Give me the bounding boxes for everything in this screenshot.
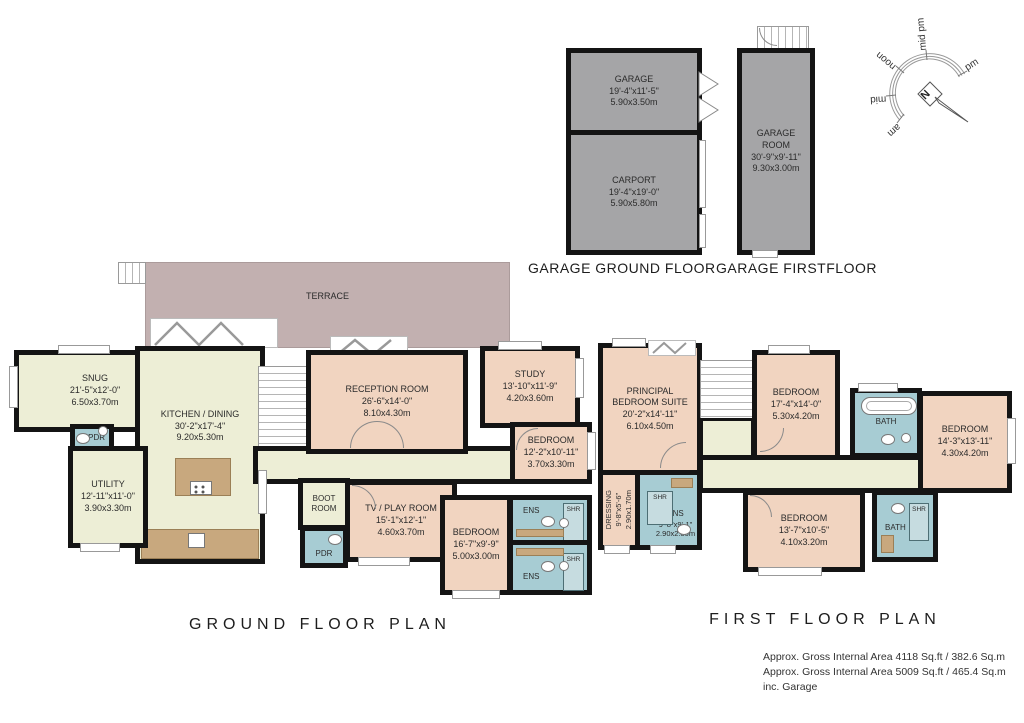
window bbox=[9, 366, 18, 408]
window bbox=[587, 432, 596, 470]
room-dims-imperial: 19'-4"x11'-5" bbox=[609, 86, 659, 98]
room-dims-metric: 4.20x3.60m bbox=[506, 393, 553, 405]
window bbox=[575, 358, 584, 398]
toilet-icon bbox=[328, 534, 342, 545]
area-summary: Approx. Gross Internal Area 4118 Sq.ft /… bbox=[763, 650, 1024, 696]
window bbox=[498, 341, 542, 350]
room-dims-metric: 5.90x5.80m bbox=[610, 198, 657, 210]
room-dims-metric: 5.30x4.20m bbox=[772, 411, 819, 423]
room-name: BEDROOM bbox=[453, 527, 500, 539]
window bbox=[752, 250, 778, 258]
room-garage: GARAGE 19'-4"x11'-5" 5.90x3.50m bbox=[566, 48, 702, 135]
room-dims-metric: 6.50x3.70m bbox=[71, 397, 118, 409]
window bbox=[58, 345, 110, 354]
basin-icon bbox=[901, 433, 911, 443]
room-dims-metric: 5.90x3.50m bbox=[610, 97, 657, 109]
room-dims-imperial: 30'-9"x9'-11" bbox=[751, 152, 801, 164]
svg-text:am: am bbox=[885, 121, 903, 138]
room-label: BEDROOM 16'-7"x9'-9" 5.00x3.00m bbox=[445, 500, 507, 590]
room-name: PDR bbox=[316, 549, 333, 559]
window bbox=[604, 545, 630, 554]
vanity bbox=[881, 535, 894, 553]
window bbox=[1007, 418, 1016, 464]
room-name: BOOT ROOM bbox=[307, 494, 341, 515]
room-dims-imperial: 13'-10"x11'-9" bbox=[503, 381, 558, 393]
room-name: DRESSING bbox=[604, 490, 614, 529]
basin-icon bbox=[559, 561, 569, 571]
room-label: BEDROOM 14'-3"x13'-11" 4.30x4.20m bbox=[923, 396, 1007, 488]
svg-text:noon: noon bbox=[874, 49, 898, 72]
room-utility: UTILITY 12'-11"x11'-0" 3.90x3.30m bbox=[68, 446, 148, 548]
room-bath-f1: BATH bbox=[850, 388, 922, 458]
room-name: BEDROOM bbox=[773, 387, 820, 399]
room-boot-room: BOOT ROOM bbox=[298, 478, 350, 530]
room-dims-metric: 6.10x4.50m bbox=[626, 421, 673, 433]
room-bedroom-f2: BEDROOM 14'-3"x13'-11" 4.30x4.20m bbox=[918, 391, 1012, 493]
room-dims-imperial: 16'-7"x9'-9" bbox=[453, 539, 498, 551]
toilet-icon bbox=[76, 433, 90, 444]
room-dims-imperial: 9'-8"x5'-6" bbox=[614, 493, 624, 527]
room-label: DRESSING 9'-8"x5'-6" 2.90x1.70m bbox=[603, 475, 635, 545]
room-dims-metric: 5.00x3.00m bbox=[452, 551, 499, 563]
room-label: GARAGE ROOM 30'-9"x9'-11" 9.30x3.00m bbox=[742, 53, 810, 250]
room-label: STUDY 13'-10"x11'-9" 4.20x3.60m bbox=[485, 351, 575, 423]
ground-stairs bbox=[258, 366, 310, 448]
toilet-icon bbox=[881, 434, 895, 445]
room-dims-imperial: 15'-1"x12'-1" bbox=[376, 515, 426, 527]
toilet-icon bbox=[541, 516, 555, 527]
room-dims-metric: 3.90x3.30m bbox=[84, 503, 131, 515]
room-dims-imperial: 17'-4"x14'-0" bbox=[771, 399, 821, 411]
room-ens-g1: ENS SHR bbox=[508, 495, 592, 545]
room-dressing: DRESSING 9'-8"x5'-6" 2.90x1.70m bbox=[598, 470, 640, 550]
area-line-1: Approx. Gross Internal Area 4118 Sq.ft /… bbox=[763, 650, 1024, 665]
room-dims-metric: 4.10x3.20m bbox=[780, 537, 827, 549]
room-label: UTILITY 12'-11"x11'-0" 3.90x3.30m bbox=[73, 451, 143, 543]
room-dims-metric: 4.30x4.20m bbox=[941, 448, 988, 460]
room-dims-metric: 2.90x1.70m bbox=[624, 490, 634, 529]
basin-icon bbox=[98, 426, 108, 436]
room-name: KITCHEN / DINING bbox=[161, 409, 240, 421]
room-name: BATH bbox=[885, 523, 906, 533]
garage-ground-title: GARAGE GROUND FLOOR bbox=[528, 260, 710, 276]
room-name: TV / PLAY ROOM bbox=[365, 503, 437, 515]
room-garage-room: GARAGE ROOM 30'-9"x9'-11" 9.30x3.00m bbox=[737, 48, 815, 255]
floorplan-canvas: GARAGE 19'-4"x11'-5" 5.90x3.50m CARPORT … bbox=[0, 0, 1024, 723]
room-name: CARPORT bbox=[612, 175, 656, 187]
room-name: BATH bbox=[876, 417, 897, 427]
room-label: CARPORT 19'-4"x19'-0" 5.90x5.80m bbox=[571, 135, 697, 250]
window bbox=[612, 338, 646, 347]
room-dims-metric: 4.60x3.70m bbox=[377, 527, 424, 539]
room-name: PRINCIPAL BEDROOM SUITE bbox=[609, 386, 691, 409]
terrace-stairs bbox=[118, 262, 146, 284]
toilet-icon bbox=[891, 503, 905, 514]
room-ens-g2: ENS SHR bbox=[508, 540, 592, 595]
room-bedroom-g1: BEDROOM 12'-2"x10'-11" 3.70x3.30m bbox=[510, 422, 592, 484]
window bbox=[650, 545, 676, 554]
room-dims-metric: 3.70x3.30m bbox=[527, 459, 574, 471]
vanity bbox=[516, 529, 564, 537]
toilet-icon bbox=[541, 561, 555, 572]
window bbox=[258, 470, 267, 514]
toilet-icon bbox=[677, 524, 691, 535]
window bbox=[452, 590, 500, 599]
bathtub-icon bbox=[861, 397, 917, 415]
room-principal-suite: PRINCIPAL BEDROOM SUITE 20'-2"x14'-11" 6… bbox=[598, 343, 702, 475]
vanity bbox=[671, 478, 693, 488]
room-study: STUDY 13'-10"x11'-9" 4.20x3.60m bbox=[480, 346, 580, 428]
shr-label: SHR bbox=[567, 506, 581, 513]
room-name: ENS bbox=[523, 506, 539, 516]
room-name: SNUG bbox=[82, 373, 108, 385]
room-name: BEDROOM bbox=[781, 513, 828, 525]
svg-text:mid am: mid am bbox=[868, 93, 887, 106]
shr-label: SHR bbox=[912, 506, 926, 513]
first-floor-hallway bbox=[698, 455, 926, 493]
carport-opening bbox=[699, 214, 706, 248]
room-label: GARAGE 19'-4"x11'-5" 5.90x3.50m bbox=[571, 53, 697, 130]
first-floor-plan-title: FIRST FLOOR PLAN bbox=[705, 611, 945, 629]
room-dims-imperial: 14'-3"x13'-11" bbox=[938, 436, 993, 448]
vanity bbox=[516, 548, 564, 556]
shr-label: SHR bbox=[567, 556, 581, 563]
room-dims-metric: 9.20x5.30m bbox=[176, 432, 223, 444]
area-line-2: Approx. Gross Internal Area 5009 Sq.ft /… bbox=[763, 665, 1024, 695]
window bbox=[758, 567, 822, 576]
room-label: KITCHEN / DINING 30'-2"x17'-4" 9.20x5.30… bbox=[140, 351, 260, 559]
shower-icon: SHR bbox=[909, 503, 929, 541]
shower-icon: SHR bbox=[647, 491, 673, 525]
room-dims-imperial: 12'-11"x11'-0" bbox=[81, 491, 135, 503]
room-pdr-boot: PDR bbox=[300, 526, 348, 568]
first-floor-stairs bbox=[700, 360, 754, 422]
room-dims-imperial: 20'-2"x14'-11" bbox=[623, 409, 678, 421]
room-name: GARAGE ROOM bbox=[742, 128, 810, 151]
room-name: ENS bbox=[523, 572, 539, 582]
room-dims-metric: 9.30x3.00m bbox=[752, 163, 799, 175]
cooktop-icon bbox=[190, 481, 212, 495]
room-dims-imperial: 26'-6"x14'-0" bbox=[362, 396, 412, 408]
svg-text:pm: pm bbox=[963, 57, 981, 74]
bifold-door-icon bbox=[648, 340, 696, 356]
room-name: BEDROOM bbox=[942, 424, 989, 436]
room-name: TERRACE bbox=[306, 291, 349, 303]
room-bath-f2: BATH SHR bbox=[872, 490, 938, 562]
room-name: UTILITY bbox=[91, 479, 125, 491]
garage-door-icon bbox=[698, 70, 720, 126]
bifold-door-icon bbox=[150, 318, 278, 348]
room-dims-metric: 8.10x4.30m bbox=[363, 408, 410, 420]
window bbox=[768, 345, 810, 354]
room-dims-imperial: 13'-7"x10'-5" bbox=[779, 525, 829, 537]
compass-rose-icon: am mid am noon mid pm pm N bbox=[868, 6, 1000, 148]
room-dims-imperial: 21'-5"x12'-0" bbox=[70, 385, 120, 397]
sink-icon bbox=[188, 533, 205, 548]
room-carport: CARPORT 19'-4"x19'-0" 5.90x5.80m bbox=[566, 130, 702, 255]
basin-icon bbox=[559, 518, 569, 528]
ground-floor-plan-title: GROUND FLOOR PLAN bbox=[175, 616, 465, 634]
window bbox=[80, 543, 120, 552]
room-label: BOOT ROOM bbox=[303, 483, 345, 525]
shower-icon: SHR bbox=[563, 553, 584, 591]
carport-opening bbox=[699, 140, 706, 208]
shr-label: SHR bbox=[653, 494, 667, 501]
svg-text:mid pm: mid pm bbox=[915, 17, 929, 51]
room-name: GARAGE bbox=[615, 74, 654, 86]
room-ens-first: ENS 9'-8"x9'-1" 2.90x2.80m SHR bbox=[635, 470, 702, 550]
room-dims-imperial: 30'-2"x17'-4" bbox=[175, 421, 225, 433]
garage-first-title: GARAGE FIRSTFLOOR bbox=[716, 260, 874, 276]
window bbox=[858, 383, 898, 392]
room-dims-imperial: 19'-4"x19'-0" bbox=[609, 187, 659, 199]
window bbox=[358, 557, 410, 566]
room-name: RECEPTION ROOM bbox=[345, 384, 428, 396]
room-name: STUDY bbox=[515, 369, 546, 381]
room-bedroom-g2: BEDROOM 16'-7"x9'-9" 5.00x3.00m bbox=[440, 495, 512, 595]
